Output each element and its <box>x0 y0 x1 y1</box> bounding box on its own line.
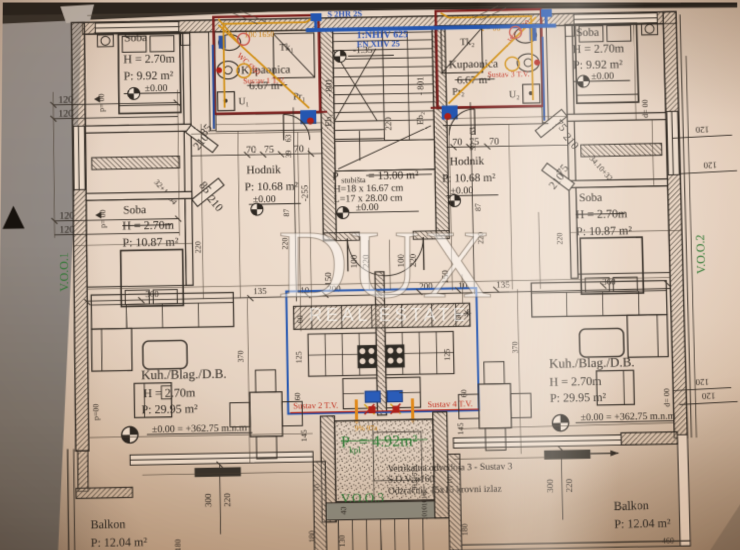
svg-text:Sustav 4 T.V.: Sustav 4 T.V. <box>427 398 472 409</box>
svg-text:DUX: DUX <box>278 211 494 318</box>
svg-text:120: 120 <box>695 125 709 135</box>
svg-text:Kupaonica: Kupaonica <box>449 58 499 71</box>
svg-text:Balkon: Balkon <box>90 517 125 532</box>
svg-text:Eb₁: Eb₁ <box>323 114 333 127</box>
svg-text:120: 120 <box>59 225 74 236</box>
svg-text:300: 300 <box>545 479 555 493</box>
svg-text:34.10+32: 34.10+32 <box>588 154 615 183</box>
svg-text:125: 125 <box>294 351 303 363</box>
svg-text:120: 120 <box>703 160 717 170</box>
svg-text:60: 60 <box>459 389 468 397</box>
svg-text:370: 370 <box>236 350 245 362</box>
svg-text:9% 97a: 9% 97a <box>355 423 379 433</box>
svg-text:d= 00: d= 00 <box>640 99 649 117</box>
svg-text:Pr₂: Pr₂ <box>452 86 465 97</box>
svg-text:EN XIIV 25: EN XIIV 25 <box>357 38 400 49</box>
svg-text:Soba: Soba <box>124 32 147 44</box>
svg-text:10101010: 10101010 <box>420 491 429 520</box>
svg-text:P: 12.04 m²: P: 12.04 m² <box>614 516 671 531</box>
svg-text:5151515: 5151515 <box>411 465 420 490</box>
svg-text:V.O.O.2: V.O.O.2 <box>693 234 708 274</box>
svg-text:V.O.O.1: V.O.O.1 <box>57 252 71 292</box>
svg-text:Soba: Soba <box>576 27 599 39</box>
svg-text:= 4.92m²: = 4.92m² <box>359 433 418 451</box>
svg-text:63: 63 <box>468 127 477 135</box>
svg-text:220: 220 <box>222 493 232 507</box>
svg-text:U₂: U₂ <box>509 89 520 100</box>
svg-text:220: 220 <box>555 233 564 245</box>
svg-text:120: 120 <box>58 95 73 106</box>
svg-text:H = 2.70m: H = 2.70m <box>123 51 175 66</box>
svg-text:H = 2.70m: H = 2.70m <box>549 374 602 389</box>
svg-text:Hodnik: Hodnik <box>450 155 485 168</box>
svg-text:P: 10.68 m²: P: 10.68 m² <box>245 181 299 194</box>
svg-text:Kuh./Blag./D.B.: Kuh./Blag./D.B. <box>549 354 635 371</box>
svg-text:U₁: U₁ <box>238 96 249 107</box>
svg-text:H = 2.70m: H = 2.70m <box>572 41 624 56</box>
svg-text:120: 120 <box>58 108 73 119</box>
svg-text:39: 39 <box>284 150 293 158</box>
svg-text:P: 9.92 m²: P: 9.92 m² <box>573 57 623 72</box>
svg-text:Kuh./Blag./D.B.: Kuh./Blag./D.B. <box>141 366 227 383</box>
svg-text:70: 70 <box>294 144 304 155</box>
svg-text:Tk₁: Tk₁ <box>279 42 294 53</box>
svg-text:H = 2.70m: H = 2.70m <box>143 385 196 400</box>
svg-text:P: 9.92 m²: P: 9.92 m² <box>124 68 174 83</box>
svg-text:180: 180 <box>173 539 182 550</box>
svg-text:210: 210 <box>560 131 581 152</box>
svg-text:- 801: - 801 <box>324 78 334 97</box>
svg-text:P: 10.87 m²: P: 10.87 m² <box>123 235 179 250</box>
svg-text:P: 29.95 m²: P: 29.95 m² <box>141 401 198 416</box>
svg-text:Balkon: Balkon <box>614 498 649 513</box>
svg-text:60: 60 <box>293 392 302 400</box>
svg-text:220: 220 <box>383 117 393 131</box>
svg-text:Soba: Soba <box>579 192 602 204</box>
svg-text:= 13.00 m²: = 13.00 m² <box>368 170 419 183</box>
svg-text:- 801: - 801 <box>415 77 425 96</box>
svg-text:120: 120 <box>701 391 715 401</box>
svg-text:220: 220 <box>193 241 202 253</box>
svg-text:180: 180 <box>460 524 469 536</box>
svg-text:Eb₂: Eb₂ <box>415 112 425 125</box>
svg-text:p=00: p=00 <box>91 404 100 421</box>
svg-text:125: 125 <box>442 349 451 361</box>
svg-text:130: 130 <box>337 535 346 547</box>
svg-text:40: 40 <box>339 507 348 515</box>
svg-text:d= 00: d= 00 <box>662 388 672 407</box>
svg-text:Hodnik: Hodnik <box>246 164 281 177</box>
svg-text:63: 63 <box>284 134 293 142</box>
svg-text:120: 120 <box>59 211 74 222</box>
svg-text:220: 220 <box>564 478 574 492</box>
svg-text:-255: -255 <box>299 184 309 201</box>
svg-text:p= 00: p= 00 <box>97 94 106 112</box>
svg-text:Tk₂: Tk₂ <box>460 37 475 48</box>
svg-text:Sustav 3 T.V.: Sustav 3 T.V. <box>488 70 530 80</box>
svg-text:180: 180 <box>307 530 316 542</box>
svg-text:P: 10.87 m²: P: 10.87 m² <box>576 223 633 238</box>
svg-text:70: 70 <box>452 137 462 148</box>
svg-text:REAL ESTATE: REAL ESTATE <box>309 304 469 325</box>
svg-text:P: P <box>332 171 339 183</box>
svg-text:120: 120 <box>695 377 709 387</box>
svg-text:6.67 m²: 6.67 m² <box>457 74 492 87</box>
svg-text:135: 135 <box>253 286 267 296</box>
svg-text:Pr₁: Pr₁ <box>293 91 305 102</box>
svg-text:75: 75 <box>264 144 274 155</box>
svg-text:70: 70 <box>246 145 256 156</box>
svg-text:Odzračnik 15x15 krovni izlaz: Odzračnik 15x15 krovni izlaz <box>388 485 502 497</box>
svg-text:Soba: Soba <box>123 204 146 216</box>
svg-text:145: 145 <box>299 430 308 442</box>
svg-text:p= 00: p= 00 <box>98 210 107 229</box>
svg-text:300: 300 <box>203 493 213 507</box>
svg-text:P: 12.04 m²: P: 12.04 m² <box>91 535 148 550</box>
svg-text:70: 70 <box>489 136 499 147</box>
svg-text:P: 29.95 m²: P: 29.95 m² <box>550 390 607 405</box>
